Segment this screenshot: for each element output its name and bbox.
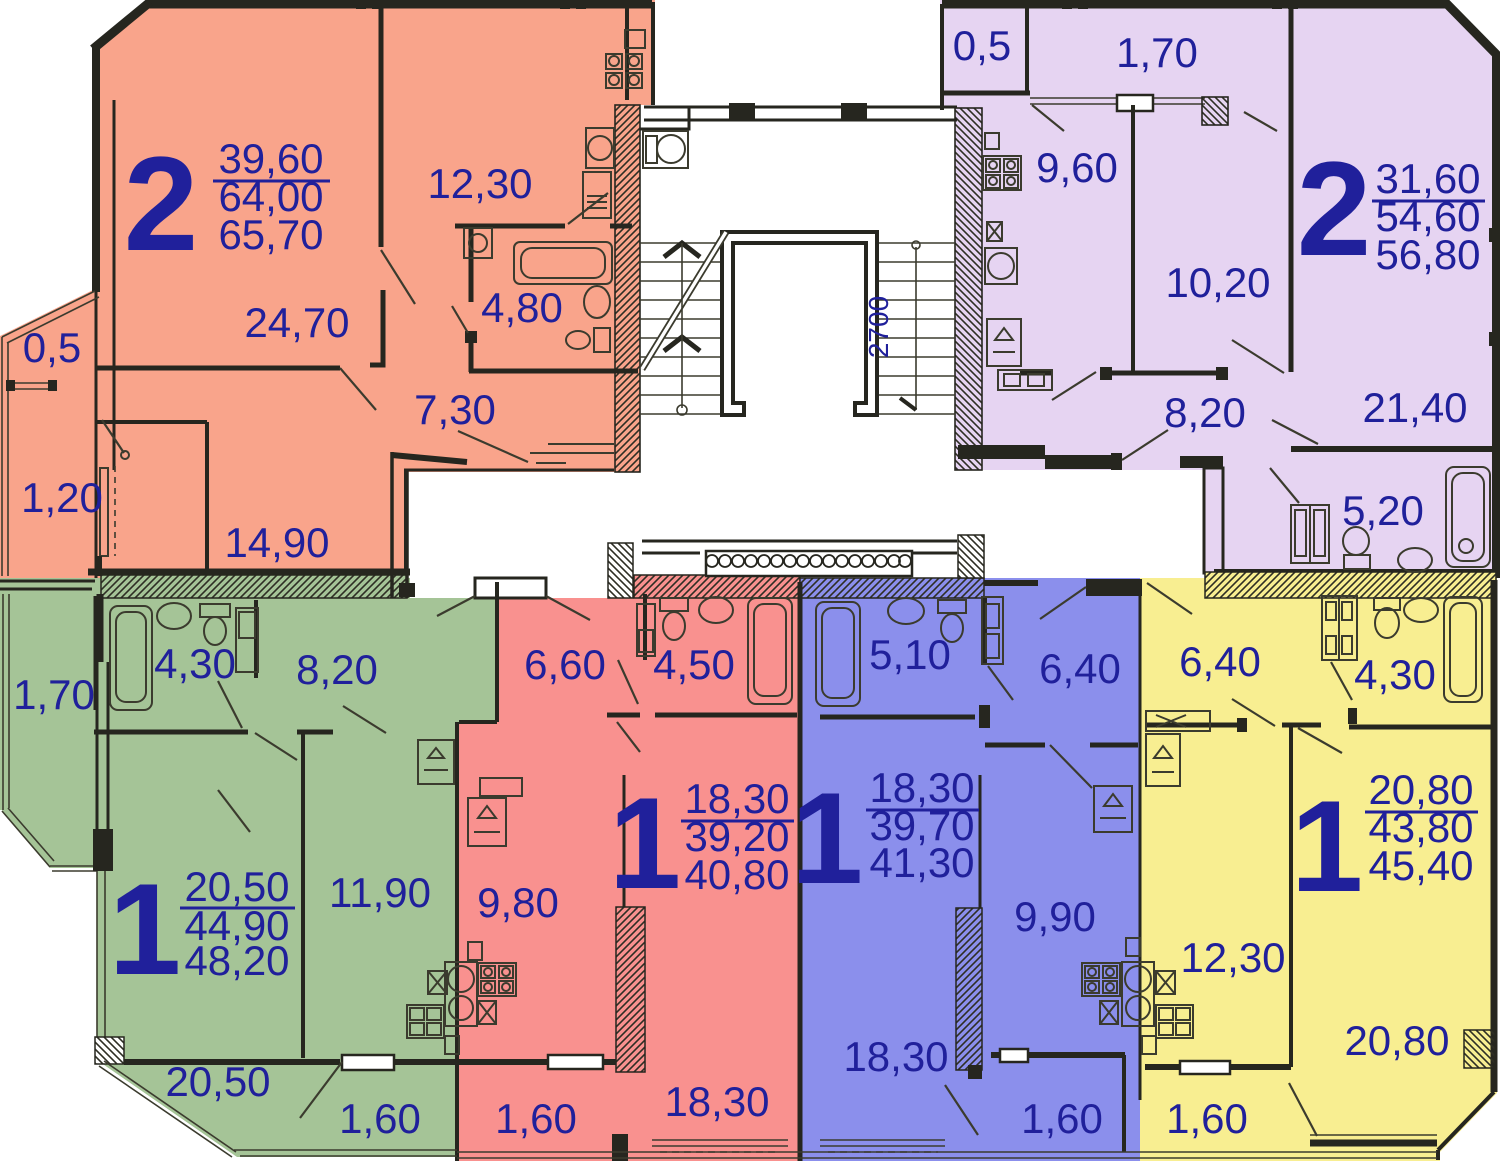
svg-text:1,60: 1,60 [339,1095,421,1142]
svg-text:65,70: 65,70 [218,211,323,258]
svg-text:1: 1 [791,765,863,911]
svg-text:6,60: 6,60 [524,641,606,688]
svg-text:18,30: 18,30 [664,1078,769,1125]
svg-text:6,40: 6,40 [1179,638,1261,685]
svg-text:9,60: 9,60 [1036,144,1118,191]
svg-text:21,40: 21,40 [1362,384,1467,431]
svg-text:2: 2 [124,130,199,279]
svg-text:20,50: 20,50 [165,1058,270,1105]
svg-text:1: 1 [109,856,181,1002]
svg-text:56,80: 56,80 [1375,231,1480,278]
svg-text:20,80: 20,80 [1344,1017,1449,1064]
svg-text:10,20: 10,20 [1165,259,1270,306]
svg-text:4,30: 4,30 [154,640,236,687]
svg-text:4,50: 4,50 [653,641,735,688]
svg-text:1: 1 [609,770,681,916]
svg-text:1: 1 [1291,773,1363,919]
svg-text:5,20: 5,20 [1342,487,1424,534]
svg-text:0,5: 0,5 [953,22,1011,69]
svg-text:12,30: 12,30 [1180,934,1285,981]
svg-text:1,20: 1,20 [21,474,103,521]
svg-text:1,60: 1,60 [1166,1095,1248,1142]
svg-text:11,90: 11,90 [329,869,431,916]
svg-text:48,20: 48,20 [184,937,289,984]
svg-text:24,70: 24,70 [244,299,349,346]
svg-text:45,40: 45,40 [1368,842,1473,889]
svg-text:4,80: 4,80 [481,284,563,331]
svg-text:12,30: 12,30 [427,160,532,207]
svg-text:6,40: 6,40 [1039,645,1121,692]
svg-text:7,30: 7,30 [414,386,496,433]
svg-text:1,60: 1,60 [1021,1095,1103,1142]
svg-text:1,70: 1,70 [13,671,95,718]
svg-text:0,5: 0,5 [23,324,81,371]
svg-text:14,90: 14,90 [224,519,329,566]
svg-text:5,10: 5,10 [869,631,951,678]
svg-text:41,30: 41,30 [869,839,974,886]
svg-text:4,30: 4,30 [1354,651,1436,698]
svg-text:1,70: 1,70 [1116,29,1198,76]
svg-text:1,60: 1,60 [495,1095,577,1142]
svg-text:2: 2 [1297,135,1372,284]
svg-text:9,80: 9,80 [477,879,559,926]
svg-text:2700: 2700 [863,296,894,358]
svg-text:9,90: 9,90 [1014,893,1096,940]
svg-text:8,20: 8,20 [1164,389,1246,436]
svg-text:40,80: 40,80 [684,851,789,898]
svg-text:18,30: 18,30 [843,1033,948,1080]
svg-text:8,20: 8,20 [296,646,378,693]
